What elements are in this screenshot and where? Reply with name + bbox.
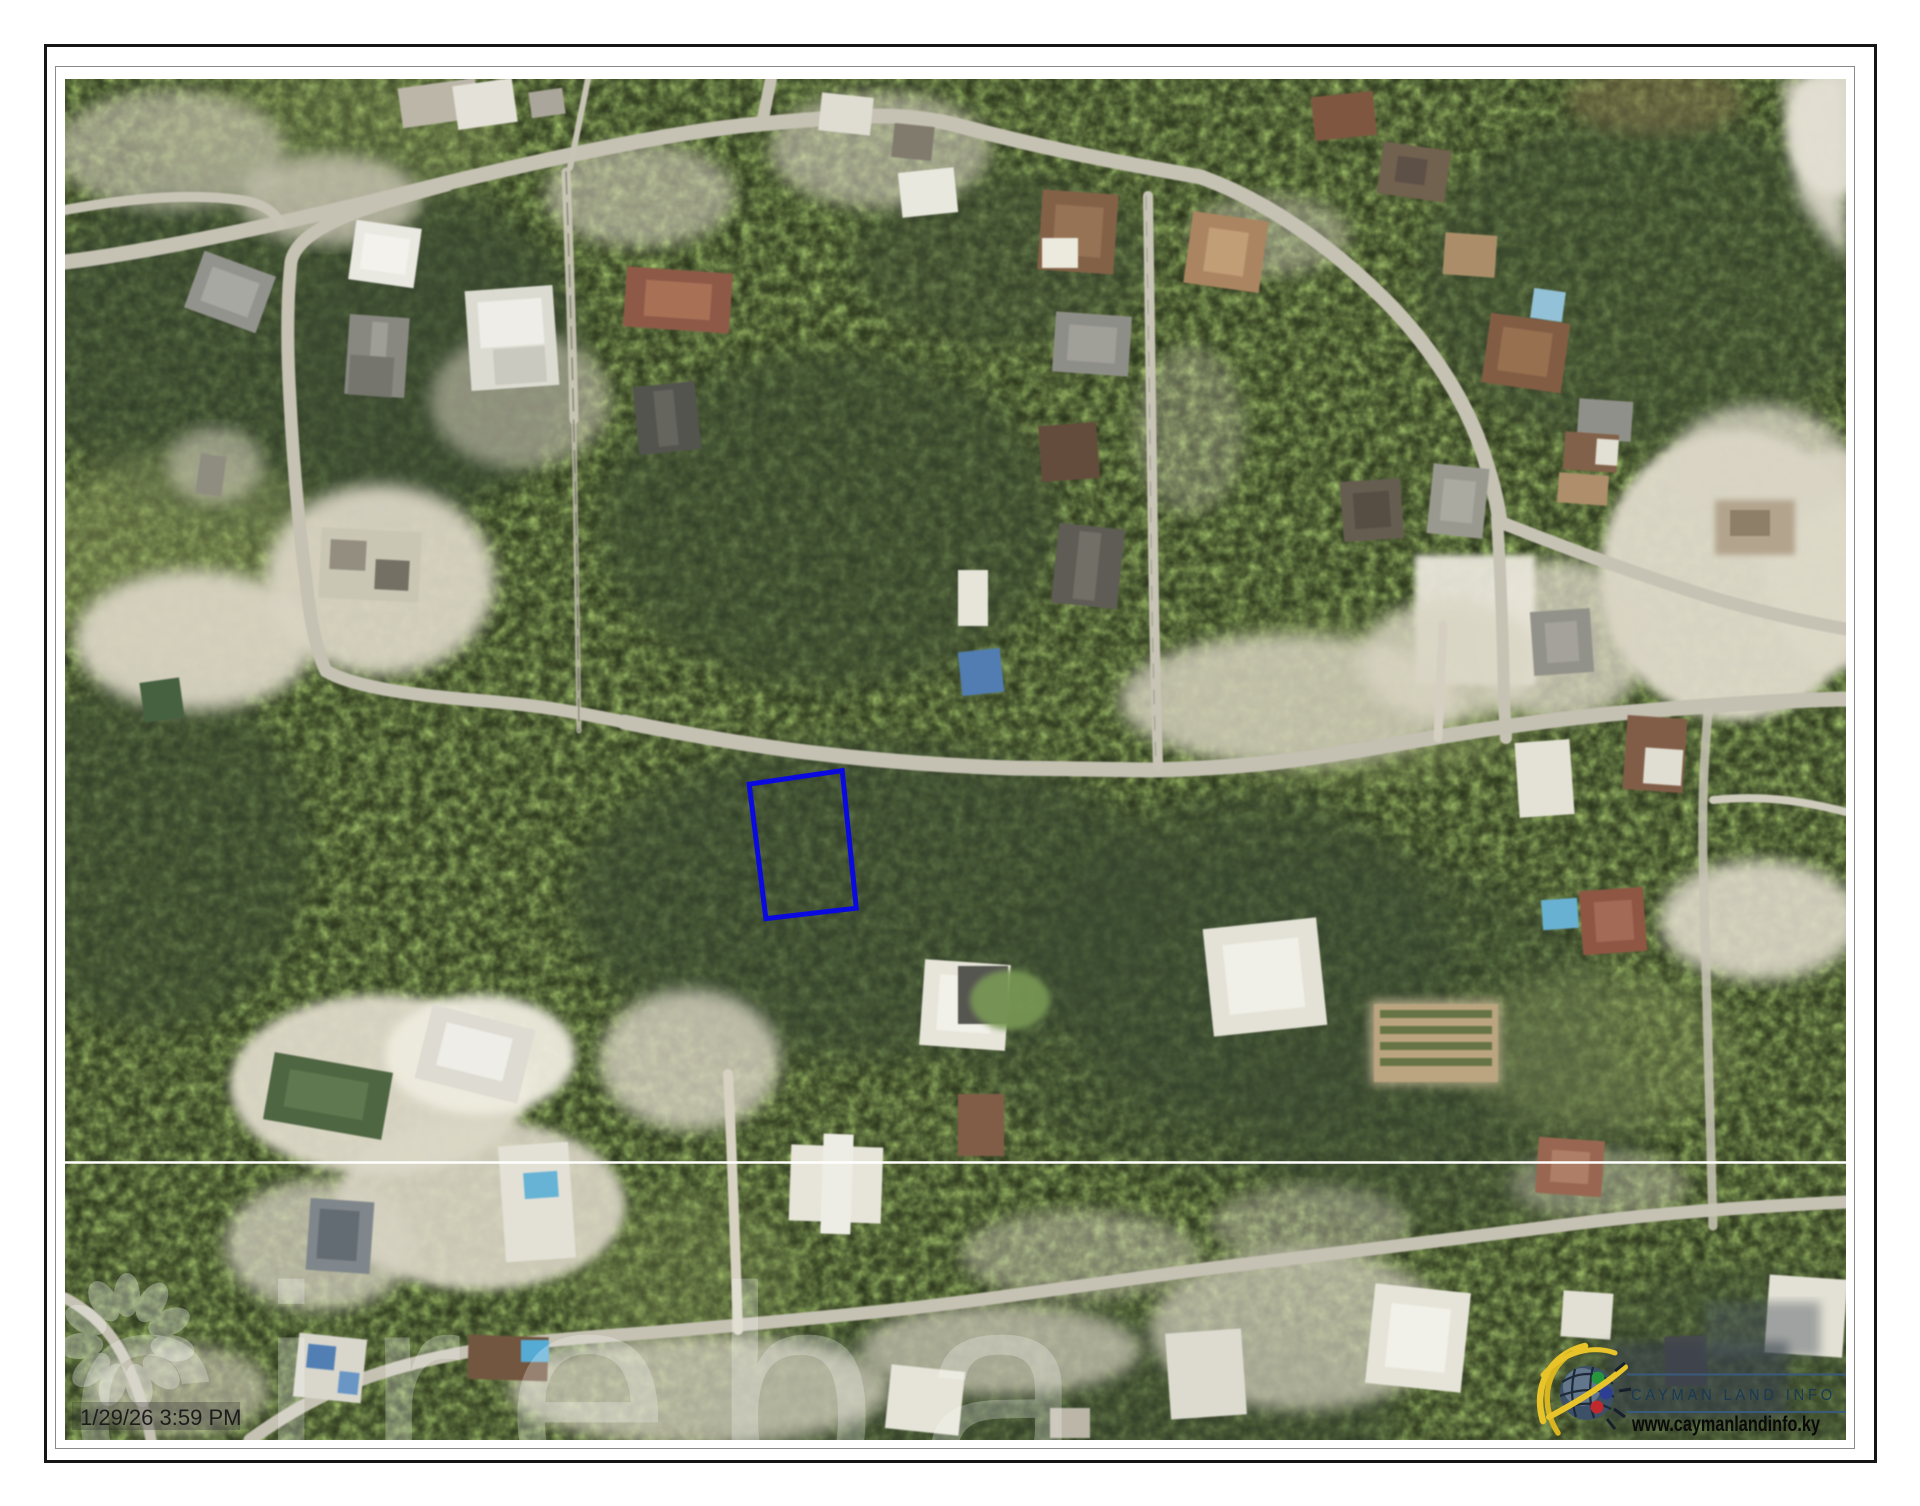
svg-text:CAYMAN LAND INFO: CAYMAN LAND INFO bbox=[1631, 1387, 1836, 1404]
svg-text:1/29/26 3:59 PM: 1/29/26 3:59 PM bbox=[80, 1405, 241, 1430]
svg-text:www.caymanlandinfo.ky: www.caymanlandinfo.ky bbox=[1631, 1413, 1820, 1436]
